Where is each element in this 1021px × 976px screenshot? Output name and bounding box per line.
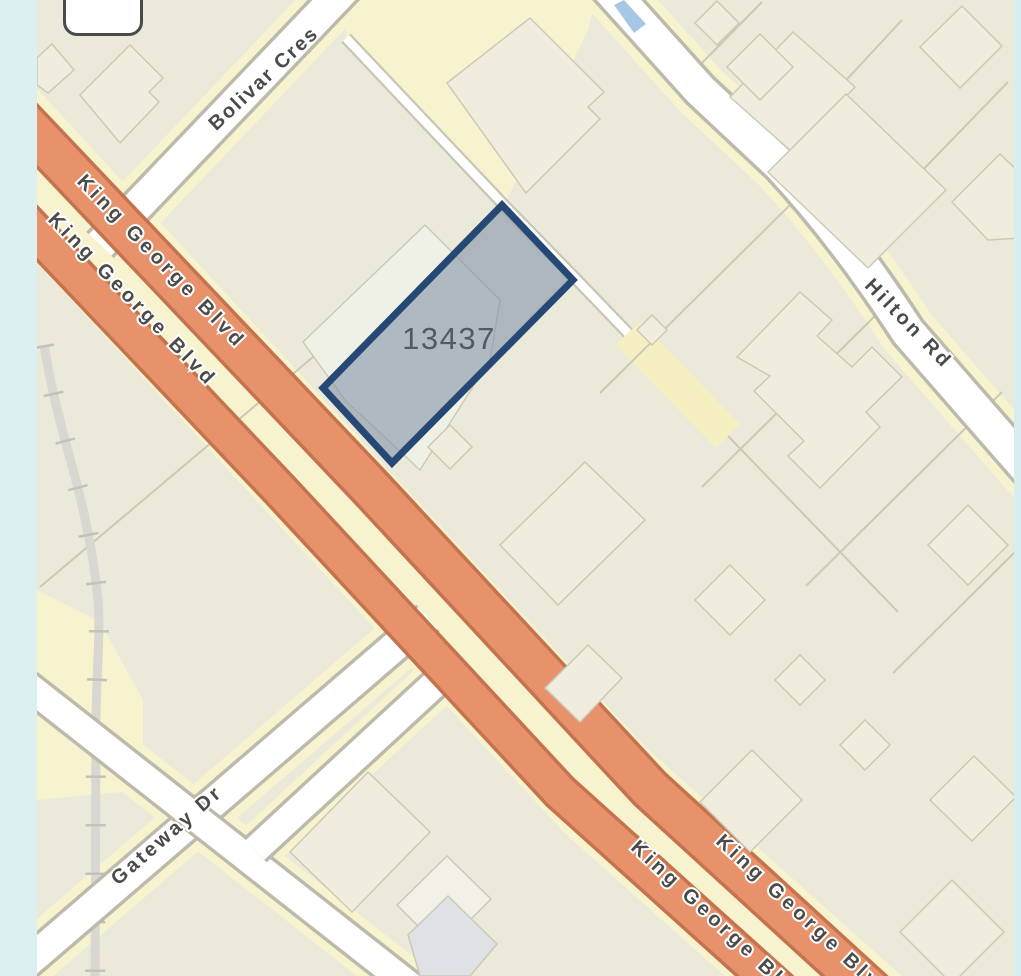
page-margin-right (1014, 0, 1021, 976)
map-canvas[interactable]: 13437 King George Blvd King George Blvd … (0, 0, 1021, 976)
map-viewport[interactable]: 13437 King George Blvd King George Blvd … (0, 0, 1021, 976)
parcel-number-label: 13437 (402, 321, 496, 356)
map-control-button[interactable] (63, 0, 143, 36)
page-margin-left (0, 0, 37, 976)
